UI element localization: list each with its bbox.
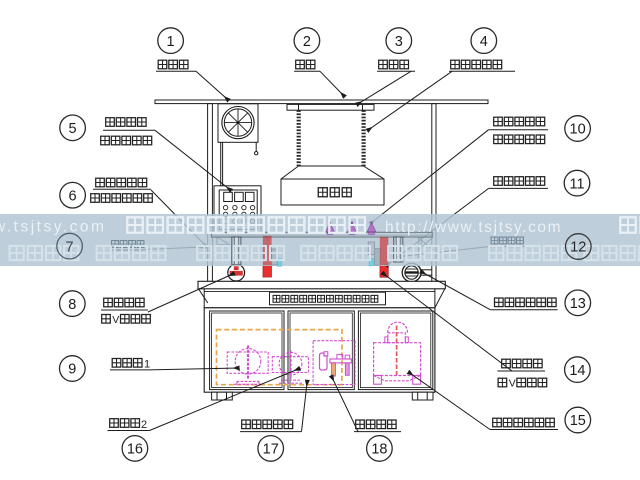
svg-text:16: 16 — [127, 442, 143, 458]
svg-text:10: 10 — [570, 122, 586, 138]
svg-text:2: 2 — [303, 34, 311, 50]
svg-text:V: V — [112, 314, 119, 326]
svg-text:1: 1 — [167, 34, 175, 50]
svg-text:5: 5 — [69, 121, 77, 137]
svg-text:6: 6 — [69, 188, 77, 204]
svg-text:18: 18 — [371, 442, 387, 458]
svg-text:11: 11 — [569, 176, 584, 192]
svg-text:8: 8 — [68, 297, 76, 313]
svg-text:w.tsjtsy.com: w.tsjtsy.com — [0, 219, 106, 236]
svg-text:3: 3 — [395, 34, 403, 50]
svg-text:9: 9 — [68, 362, 76, 378]
svg-text:13: 13 — [570, 296, 586, 312]
svg-text:12: 12 — [570, 240, 586, 256]
svg-text:17: 17 — [263, 442, 279, 458]
svg-text:2: 2 — [141, 419, 147, 431]
svg-text:http://www.tsjtsy.com: http://www.tsjtsy.com — [385, 219, 562, 236]
svg-text:4: 4 — [480, 34, 488, 50]
svg-text:1: 1 — [144, 359, 150, 371]
svg-text:14: 14 — [569, 363, 585, 379]
svg-text:15: 15 — [570, 413, 586, 429]
svg-text:7: 7 — [66, 239, 74, 255]
svg-text:V: V — [509, 378, 516, 390]
